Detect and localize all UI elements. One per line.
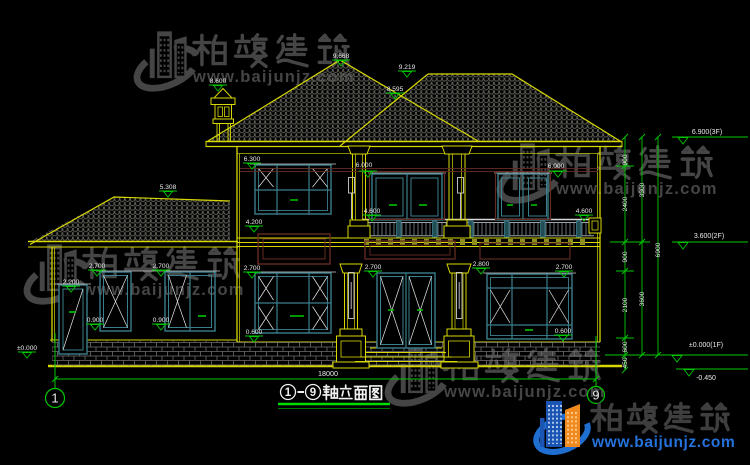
svg-text:6.300: 6.300 — [244, 156, 261, 163]
svg-text:4.600: 4.600 — [364, 208, 381, 215]
svg-text:9.668: 9.668 — [333, 53, 350, 60]
svg-text:4.600: 4.600 — [576, 208, 593, 215]
svg-text:6.000: 6.000 — [356, 162, 373, 169]
svg-text:1: 1 — [51, 391, 58, 406]
svg-text:6900: 6900 — [655, 242, 662, 257]
svg-text:2.700: 2.700 — [365, 264, 382, 271]
svg-text:600: 600 — [622, 341, 629, 352]
svg-text:2.700: 2.700 — [89, 263, 106, 270]
svg-text:900: 900 — [622, 154, 629, 165]
svg-text:2.800: 2.800 — [473, 261, 490, 268]
svg-text:www.baijunjz.com: www.baijunjz.com — [591, 434, 735, 451]
svg-text:-0.450: -0.450 — [696, 375, 716, 382]
svg-text:0.900: 0.900 — [87, 317, 104, 324]
svg-text:4.200: 4.200 — [246, 219, 263, 226]
svg-text:9: 9 — [310, 387, 316, 399]
svg-text:3600: 3600 — [639, 291, 646, 306]
svg-text:±0.000: ±0.000 — [17, 345, 37, 352]
svg-text:0.900: 0.900 — [153, 317, 170, 324]
svg-text:9.219: 9.219 — [399, 64, 416, 71]
svg-text:450: 450 — [622, 357, 629, 368]
svg-text:1: 1 — [285, 387, 292, 399]
svg-text:2.700: 2.700 — [556, 264, 573, 271]
svg-text:6.900(3F): 6.900(3F) — [692, 129, 722, 136]
svg-text:3.600(2F): 3.600(2F) — [694, 233, 724, 240]
svg-text:2.700: 2.700 — [153, 263, 170, 270]
svg-text:0.600: 0.600 — [246, 329, 263, 336]
svg-text:6.000: 6.000 — [548, 163, 565, 170]
svg-text:8.595: 8.595 — [387, 86, 404, 93]
svg-text:2400: 2400 — [622, 196, 629, 211]
svg-text:18000: 18000 — [318, 369, 338, 378]
svg-text:900: 900 — [622, 251, 629, 262]
svg-text:5.308: 5.308 — [160, 184, 177, 191]
svg-text:±0.000(1F): ±0.000(1F) — [689, 342, 723, 349]
svg-text:8.600: 8.600 — [210, 78, 227, 85]
svg-text:2100: 2100 — [622, 297, 629, 312]
svg-text:2.200: 2.200 — [63, 279, 80, 286]
svg-text:0.600: 0.600 — [555, 328, 572, 335]
svg-text:3300: 3300 — [639, 182, 646, 197]
svg-text:2.700: 2.700 — [244, 265, 261, 272]
svg-text:9: 9 — [592, 388, 599, 403]
